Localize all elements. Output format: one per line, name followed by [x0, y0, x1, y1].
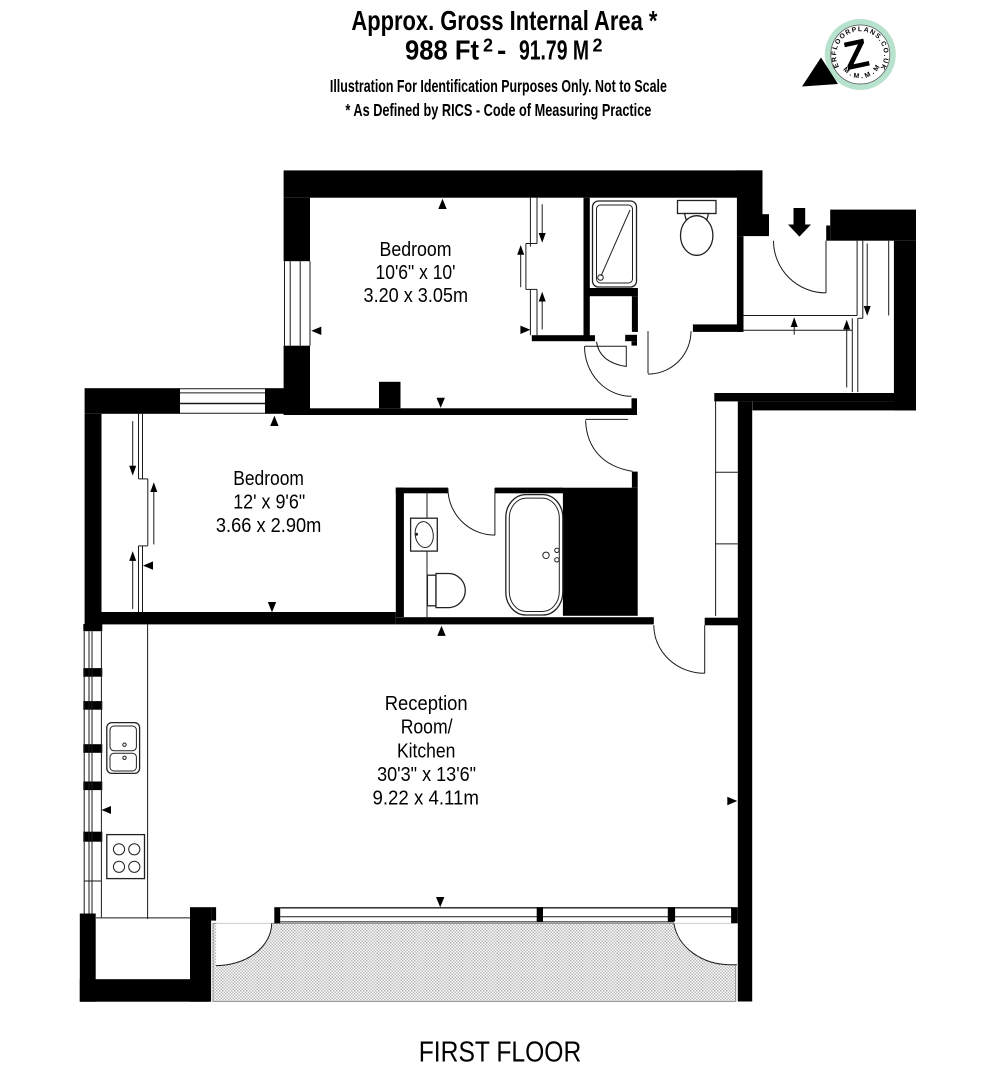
svg-text:Room/: Room/ [401, 716, 453, 739]
svg-text:Bedroom: Bedroom [380, 238, 452, 261]
svg-text:Reception: Reception [385, 692, 468, 715]
svg-text:10'6" x 10': 10'6" x 10' [376, 261, 456, 284]
svg-text:30'3" x 13'6": 30'3" x 13'6" [377, 763, 476, 786]
svg-text:12' x 9'6": 12' x 9'6" [233, 490, 305, 513]
svg-text:Bedroom: Bedroom [233, 467, 304, 490]
svg-text:3.66 x 2.90m: 3.66 x 2.90m [216, 514, 321, 537]
svg-text:* As Defined by RICS - Code of: * As Defined by RICS - Code of Measuring… [345, 100, 651, 120]
svg-text:2: 2 [593, 36, 603, 56]
svg-text:91.79 M: 91.79 M [519, 35, 589, 66]
svg-text:Approx. Gross Internal Area *: Approx. Gross Internal Area * [351, 5, 657, 36]
svg-text:Illustration For Identificatio: Illustration For Identification Purposes… [330, 76, 667, 96]
svg-text:3.20 x 3.05m: 3.20 x 3.05m [364, 284, 469, 307]
svg-text:9.22 x 4.11m: 9.22 x 4.11m [372, 786, 479, 809]
svg-text:2: 2 [483, 36, 493, 56]
svg-text:Kitchen: Kitchen [397, 739, 456, 762]
svg-text:988 Ft: 988 Ft [405, 35, 479, 66]
svg-text:FIRST FLOOR: FIRST FLOOR [419, 1036, 582, 1068]
svg-text:-: - [497, 35, 506, 66]
